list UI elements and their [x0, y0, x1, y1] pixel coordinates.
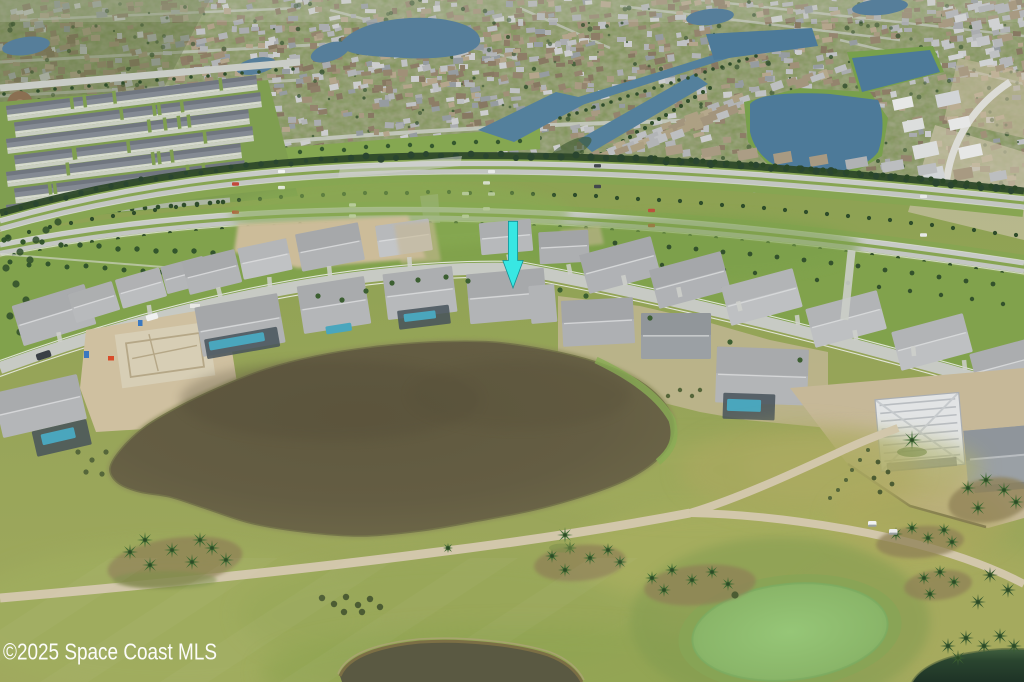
- svg-text:©2025 Space Coast MLS: ©2025 Space Coast MLS: [3, 639, 217, 665]
